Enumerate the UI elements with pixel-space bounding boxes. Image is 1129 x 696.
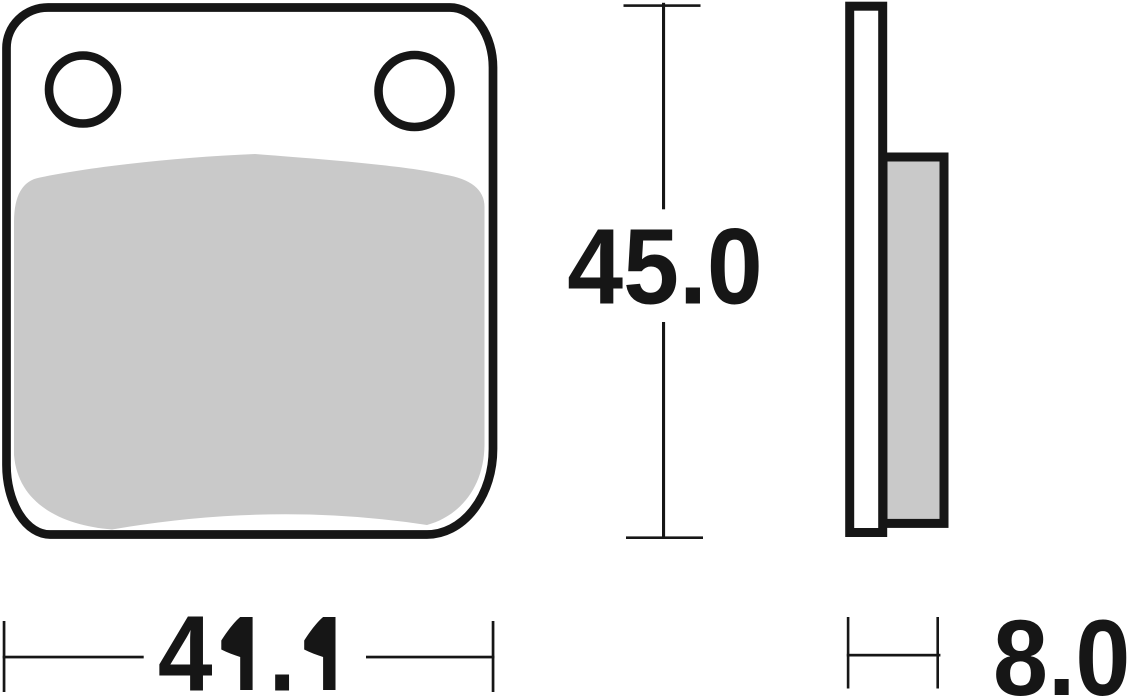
svg-text:45.0: 45.0 xyxy=(567,207,762,327)
svg-text:.: . xyxy=(268,593,295,696)
svg-text:8.0: 8.0 xyxy=(993,597,1129,696)
svg-text:4: 4 xyxy=(158,593,213,696)
